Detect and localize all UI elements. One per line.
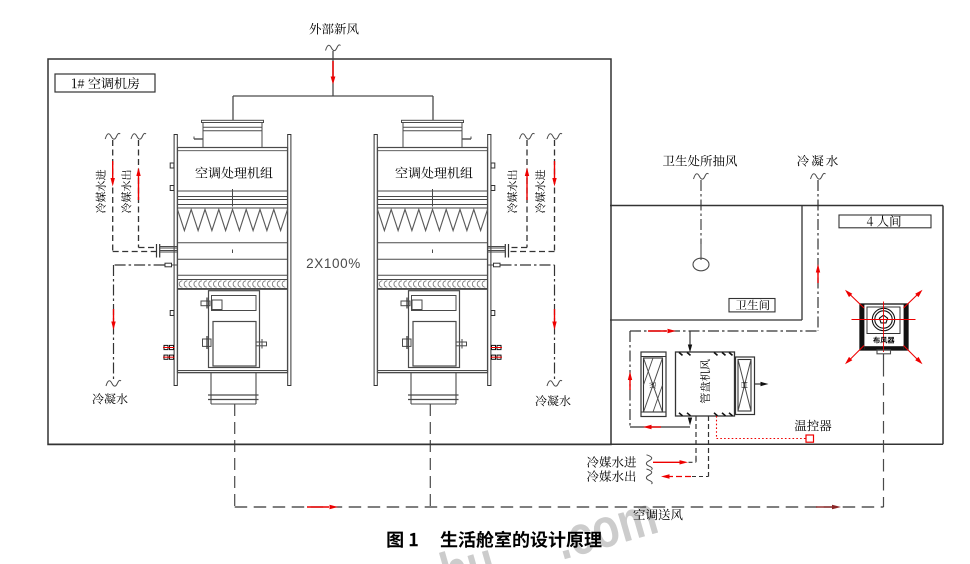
svg-text:2X100%: 2X100% [306, 256, 361, 271]
